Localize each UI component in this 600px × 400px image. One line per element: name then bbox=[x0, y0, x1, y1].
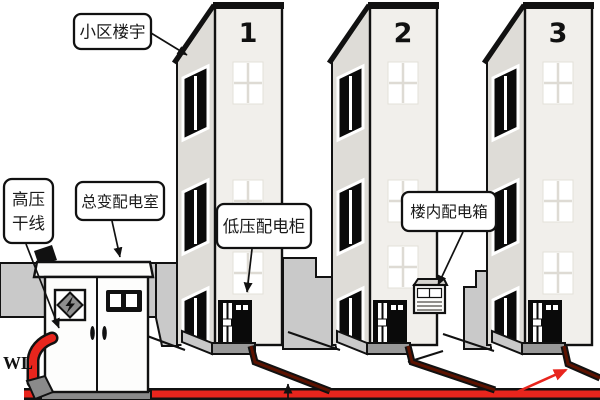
diagram-canvas: 1 bbox=[0, 0, 600, 400]
door-handle bbox=[90, 326, 95, 340]
side-window bbox=[338, 66, 363, 345]
door-handle bbox=[102, 326, 107, 340]
transformer-cabinet bbox=[34, 245, 153, 400]
svg-text:干线: 干线 bbox=[12, 214, 45, 233]
side-window bbox=[183, 66, 208, 345]
callout-arrow bbox=[112, 221, 120, 257]
cabinet-roof bbox=[34, 262, 153, 277]
building-feeder-cable bbox=[251, 346, 330, 391]
svg-text:高压: 高压 bbox=[12, 190, 45, 209]
power-distribution-diagram: 1 bbox=[0, 0, 600, 400]
building-3: 3 bbox=[484, 2, 594, 354]
wall-between-1-2 bbox=[283, 258, 336, 349]
switch-window bbox=[126, 294, 137, 307]
building-feeder-cable bbox=[564, 346, 600, 378]
building-2-roof bbox=[368, 2, 439, 9]
lv-distribution-cabinet-unit bbox=[522, 300, 565, 354]
building-1: 1 bbox=[174, 2, 284, 354]
building-1-number: 1 bbox=[239, 18, 258, 49]
callout-arrow bbox=[151, 33, 187, 55]
building-feeder-cable bbox=[408, 346, 495, 390]
building-1-roof bbox=[213, 2, 284, 9]
indoor-distribution-box-unit bbox=[414, 279, 447, 313]
callout-arrow bbox=[438, 232, 463, 285]
label-main-transformer-room: 总变配电室 bbox=[76, 182, 164, 257]
label-community-building: 小区楼宇 bbox=[74, 14, 187, 55]
svg-text:低压配电柜: 低压配电柜 bbox=[223, 217, 306, 236]
building-3-number: 3 bbox=[549, 18, 568, 49]
svg-text:楼内配电箱: 楼内配电箱 bbox=[410, 203, 488, 221]
lv-distribution-cabinet-unit bbox=[212, 300, 255, 354]
building-2-number: 2 bbox=[394, 18, 413, 49]
wl-wire-label: WL bbox=[3, 353, 33, 373]
wall-pillar bbox=[156, 263, 178, 346]
switch-window bbox=[110, 294, 121, 307]
svg-text:小区楼宇: 小区楼宇 bbox=[80, 23, 146, 42]
svg-text:总变配电室: 总变配电室 bbox=[81, 193, 159, 211]
lv-distribution-cabinet-unit bbox=[367, 300, 410, 354]
building-3-roof bbox=[523, 2, 594, 9]
